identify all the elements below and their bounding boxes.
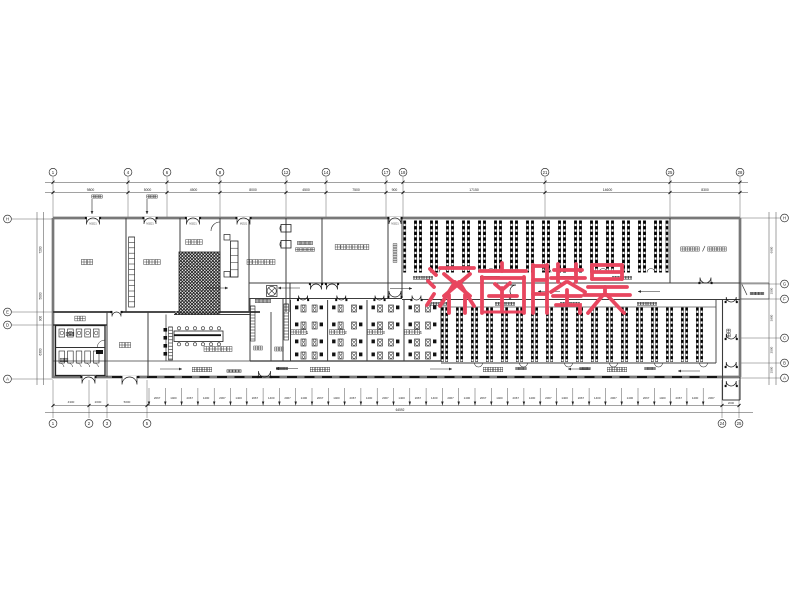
svg-text:E: E (6, 310, 9, 315)
svg-text:2067: 2067 (447, 396, 454, 400)
svg-text:2067: 2067 (252, 396, 259, 400)
svg-text:6600: 6600 (770, 246, 774, 253)
svg-text:14600: 14600 (603, 188, 613, 192)
svg-text:2000: 2000 (95, 400, 102, 404)
svg-text:1400: 1400 (170, 396, 177, 400)
svg-text:1400: 1400 (529, 396, 536, 400)
svg-text:M1521: M1521 (146, 223, 154, 226)
svg-text:H: H (6, 217, 9, 222)
svg-text:1400: 1400 (627, 396, 634, 400)
svg-text:1400: 1400 (333, 396, 340, 400)
svg-text:1400: 1400 (268, 396, 275, 400)
svg-text:5000: 5000 (144, 188, 152, 192)
svg-text:25: 25 (737, 421, 742, 426)
svg-text:28: 28 (738, 170, 743, 175)
svg-text:2067: 2067 (545, 396, 552, 400)
svg-text:2067: 2067 (513, 396, 520, 400)
svg-text:24: 24 (720, 421, 725, 426)
svg-text:2067: 2067 (643, 396, 650, 400)
svg-text:2067: 2067 (415, 396, 422, 400)
svg-text:2067: 2067 (676, 396, 683, 400)
svg-text:9800: 9800 (87, 188, 95, 192)
svg-text:1400: 1400 (301, 396, 308, 400)
svg-text:2067: 2067 (610, 396, 617, 400)
svg-text:12: 12 (284, 170, 289, 175)
svg-text:5000: 5000 (124, 400, 131, 404)
svg-text:3: 3 (382, 330, 385, 336)
svg-text:2067: 2067 (382, 396, 389, 400)
svg-text:64592: 64592 (396, 408, 405, 412)
svg-text:25: 25 (668, 170, 673, 175)
svg-text:1400: 1400 (431, 396, 438, 400)
svg-text:C: C (783, 336, 786, 341)
svg-text:H: H (783, 216, 786, 221)
svg-text:1400: 1400 (561, 396, 568, 400)
svg-text:G: G (783, 282, 786, 287)
svg-text:M1521: M1521 (89, 223, 97, 226)
svg-text:2500: 2500 (770, 346, 774, 353)
svg-text:2067: 2067 (480, 396, 487, 400)
svg-text:5000: 5000 (39, 292, 43, 299)
svg-text:2067: 2067 (708, 396, 715, 400)
svg-text:A: A (783, 376, 786, 381)
svg-text:1400: 1400 (496, 396, 503, 400)
svg-text:7200: 7200 (39, 246, 43, 253)
svg-text:1400: 1400 (692, 396, 699, 400)
svg-text:900: 900 (392, 188, 398, 192)
svg-text:900: 900 (39, 316, 43, 322)
svg-text:1: 1 (306, 330, 309, 336)
svg-text:4: 4 (419, 330, 422, 336)
svg-text:4300: 4300 (68, 400, 75, 404)
svg-text:F: F (783, 297, 786, 302)
svg-text:2067: 2067 (154, 396, 161, 400)
svg-text:21: 21 (543, 170, 548, 175)
svg-text:1400: 1400 (235, 396, 242, 400)
svg-text:8000: 8000 (249, 188, 257, 192)
svg-text:2067: 2067 (350, 396, 357, 400)
svg-text:B: B (783, 361, 786, 366)
svg-text:6300: 6300 (39, 348, 43, 355)
svg-text:7500: 7500 (352, 188, 360, 192)
svg-text:1400: 1400 (366, 396, 373, 400)
svg-text:17: 17 (384, 170, 389, 175)
svg-text:1400: 1400 (398, 396, 405, 400)
svg-text:17150: 17150 (469, 188, 479, 192)
svg-text:2067: 2067 (219, 396, 226, 400)
svg-text:D: D (6, 323, 9, 328)
svg-text:18: 18 (401, 170, 406, 175)
svg-text:2067: 2067 (187, 396, 194, 400)
svg-text:1500: 1500 (770, 287, 774, 294)
svg-text:8300: 8300 (701, 188, 709, 192)
svg-text:A: A (6, 377, 9, 382)
svg-text:2: 2 (344, 330, 347, 336)
svg-text:2067: 2067 (578, 396, 585, 400)
svg-text:M1521: M1521 (391, 223, 399, 226)
svg-text:2000: 2000 (728, 401, 735, 405)
svg-text:14: 14 (324, 170, 329, 175)
svg-text:2067: 2067 (317, 396, 324, 400)
svg-text:2067: 2067 (284, 396, 291, 400)
svg-text:3900: 3900 (770, 314, 774, 321)
svg-text:1400: 1400 (203, 396, 210, 400)
svg-text:1500: 1500 (770, 366, 774, 373)
svg-text:1400: 1400 (594, 396, 601, 400)
svg-text:M1521: M1521 (240, 223, 248, 226)
svg-text:M1521: M1521 (189, 223, 197, 226)
svg-text:1400: 1400 (659, 396, 666, 400)
svg-text:1400: 1400 (464, 396, 471, 400)
svg-text:4500: 4500 (190, 188, 198, 192)
svg-text:4500: 4500 (302, 188, 310, 192)
